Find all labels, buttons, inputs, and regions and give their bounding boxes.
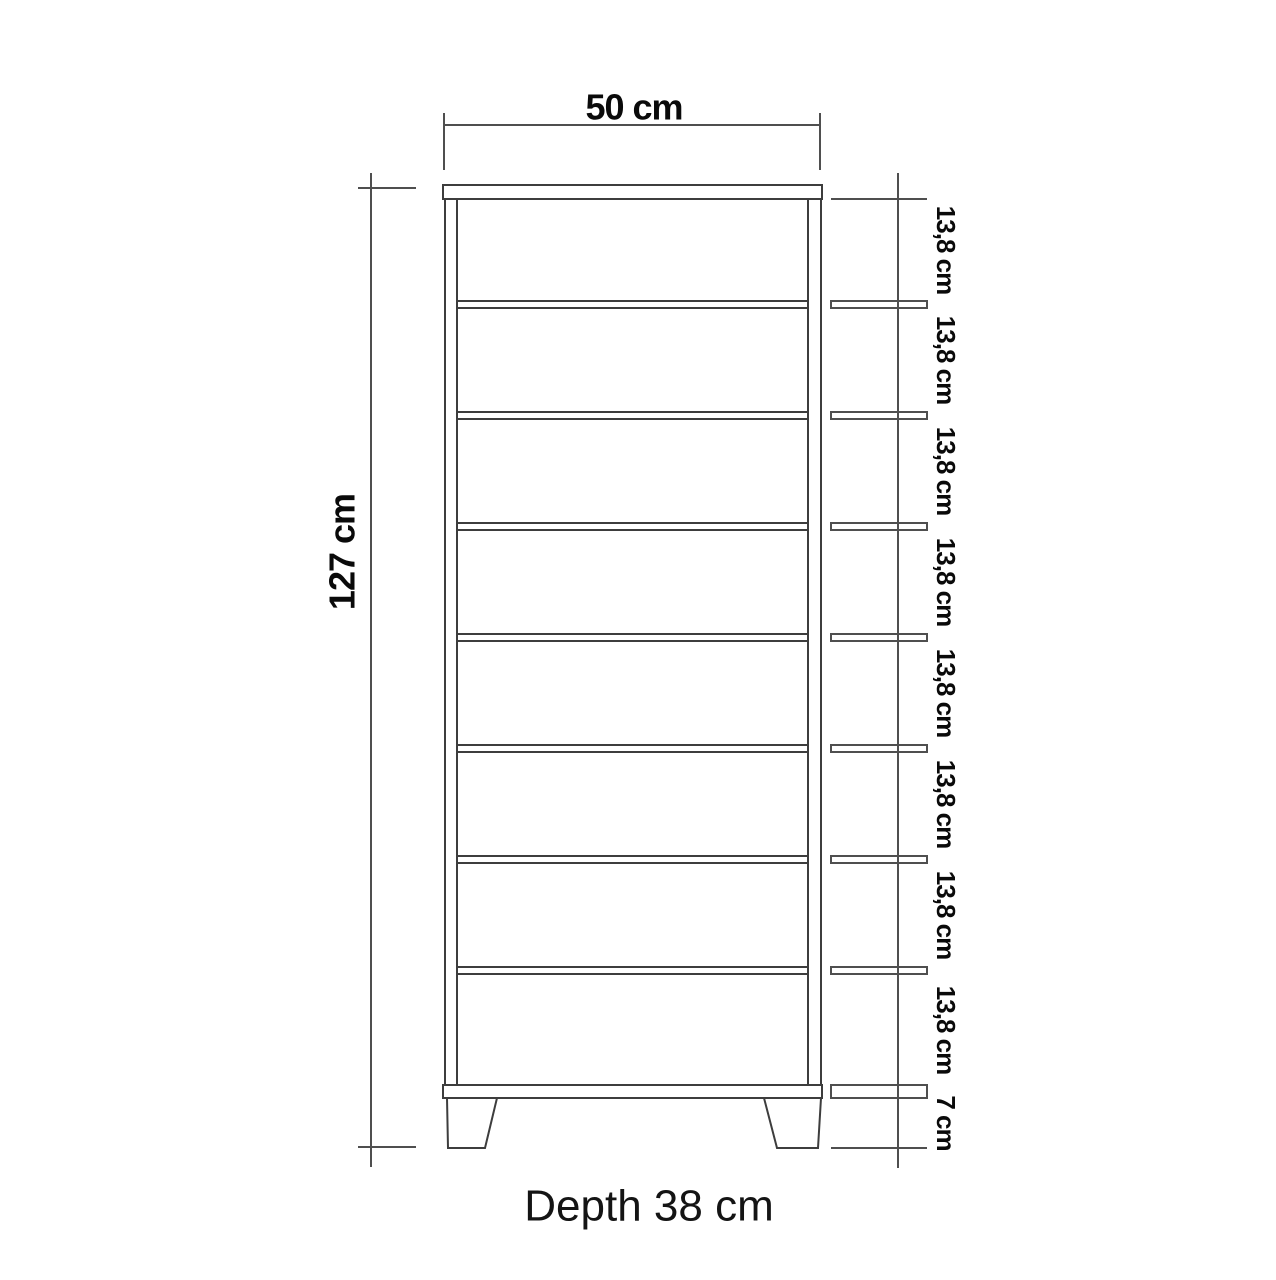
shelf-line [457,412,808,419]
width-dimension: 50 cm [444,87,820,171]
compartment-dimension-label: 13,8 cm [931,206,961,294]
compartment-dimension-label: 13,8 cm [931,316,961,404]
shelf-line [457,856,808,863]
cabinet-left-foot [447,1098,497,1148]
shelf-line [457,634,808,641]
base-dimension-label: 7 cm [931,1095,961,1150]
compartment-tick [831,412,927,419]
shelf-line [457,967,808,974]
depth-label: Depth 38 cm [524,1182,773,1231]
cabinet-right-side-panel [808,199,821,1085]
dimension-diagram: 50 cm 127 cm 13,8 cm 1 [0,0,1276,1280]
compartment-dimension-label: 13,8 cm [931,871,961,959]
compartment-dimensions: 13,8 cm 13,8 cm 13,8 cm 13,8 cm 13,8 cm … [831,173,961,1168]
height-dimension-label: 127 cm [322,494,363,610]
drawing-canvas: 50 cm 127 cm 13,8 cm 1 [0,0,1276,1280]
compartment-dimension-label: 13,8 cm [931,649,961,737]
compartment-dimension-label: 13,8 cm [931,538,961,626]
compartment-dimension-label: 13,8 cm [931,986,961,1074]
cabinet-shelves [457,301,808,974]
compartment-tick [831,856,927,863]
compartment-bottom-panel-tick [831,1085,927,1098]
compartment-tick [831,523,927,530]
compartment-dimension-label: 13,8 cm [931,760,961,848]
shelf-line [457,745,808,752]
compartment-tick [831,745,927,752]
width-dimension-label: 50 cm [585,87,682,128]
shelf-line [457,523,808,530]
shelf-line [457,301,808,308]
cabinet-right-foot [764,1098,821,1148]
compartment-tick [831,967,927,974]
compartment-tick [831,634,927,641]
cabinet-front-view [443,185,822,1148]
height-dimension: 127 cm [322,173,417,1167]
compartment-dimension-label: 13,8 cm [931,427,961,515]
cabinet-top-panel [443,185,822,199]
cabinet-left-side-panel [445,199,457,1085]
compartment-tick [831,301,927,308]
cabinet-bottom-panel [443,1085,822,1098]
